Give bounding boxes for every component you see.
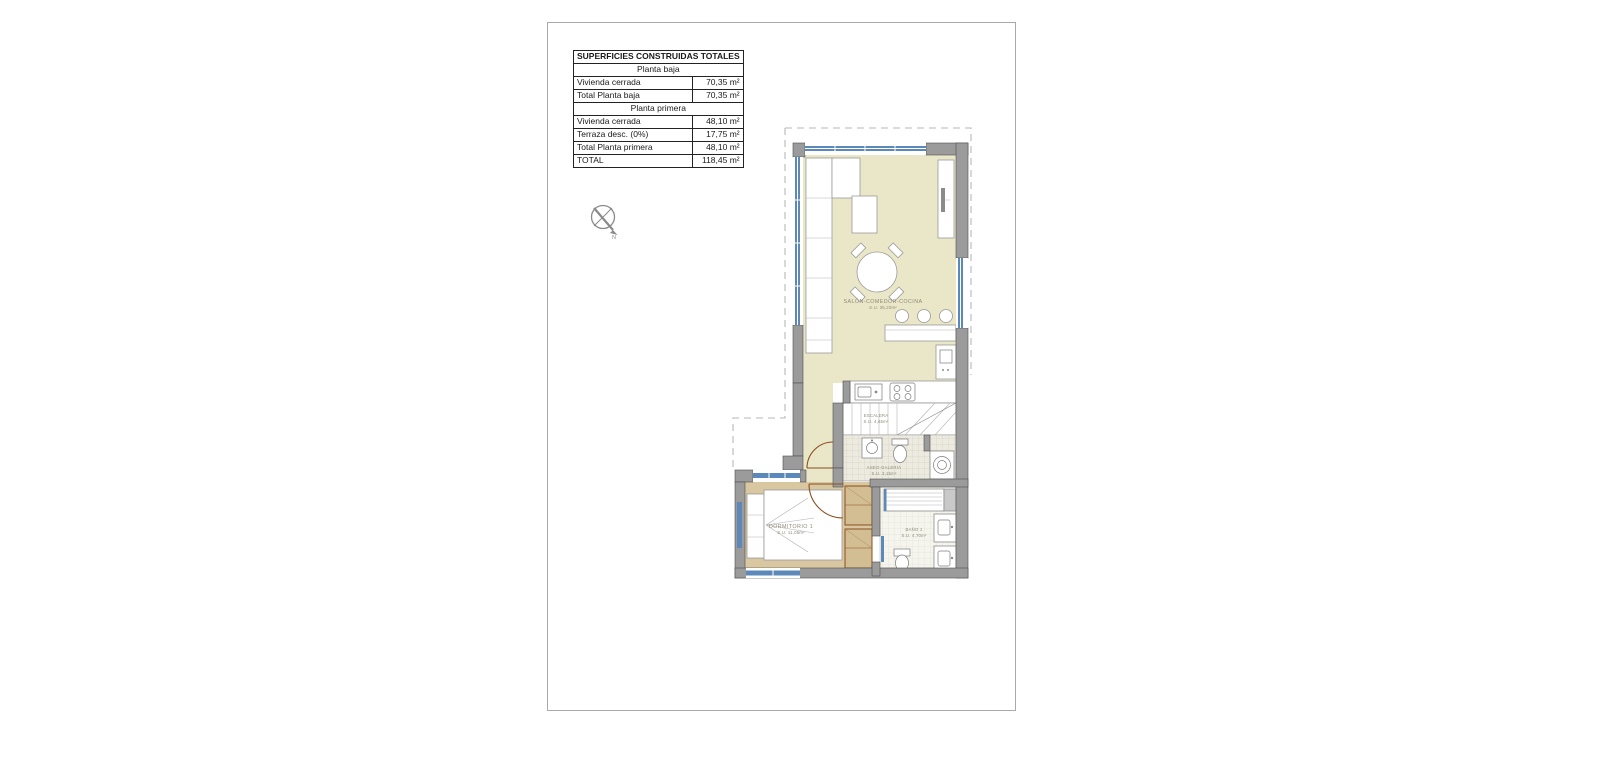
aseo-galeria: ASEO-GALERIA S.U. 3,15m² (843, 435, 956, 481)
vanity-basin (934, 514, 956, 542)
bar-stool (918, 310, 931, 323)
window (956, 258, 968, 328)
wardrobe (845, 486, 872, 525)
hall-floor (803, 383, 833, 487)
bar-stool (896, 310, 909, 323)
shower (884, 489, 956, 511)
window (737, 502, 742, 548)
coffee-table (852, 196, 877, 233)
sofa (806, 158, 832, 353)
wardrobe (845, 529, 872, 568)
room-area-salon: S.U. 35,20m² (869, 305, 897, 310)
bathroom: BAÑO 1 S.U. 4,70m² (880, 487, 956, 572)
room-label-escalera: ESCALERA (864, 413, 889, 418)
window (753, 470, 800, 482)
room-area-bano: S.U. 4,70m² (901, 533, 926, 538)
window (793, 157, 803, 325)
tv-unit (938, 160, 954, 238)
staircase: ESCALERA S.U. 4,65m² (843, 403, 956, 435)
oven-column (936, 345, 956, 379)
wash-basin (862, 438, 882, 458)
washing-machine (930, 451, 954, 479)
room-area-dormitorio: S.U. 11,05m² (777, 530, 805, 535)
breakfast-bar (885, 325, 956, 341)
room-label-salon: SALÓN-COMEDOR-COCINA (844, 298, 923, 305)
dining-table (857, 252, 897, 292)
room-area-aseo: S.U. 3,15m² (871, 471, 896, 476)
sofa-chaise (832, 158, 860, 198)
toilet (892, 439, 908, 463)
bar-stool (940, 310, 953, 323)
partition-wall (924, 435, 930, 451)
bathroom-door (881, 536, 884, 562)
cooktop (890, 383, 915, 401)
room-label-aseo: ASEO-GALERIA (867, 465, 901, 470)
room-area-escalera: S.U. 4,65m² (863, 419, 888, 424)
window (746, 568, 800, 578)
room-label-bano: BAÑO 1 (906, 527, 923, 532)
north-compass-icon: N (592, 206, 618, 242)
drawing-sheet: SUPERFICIES CONSTRUIDAS TOTALES Planta b… (0, 0, 1620, 760)
compass-north-label: N (612, 235, 616, 241)
window (805, 143, 926, 155)
floor-plan: N (540, 15, 1020, 715)
kitchen-sink (855, 384, 882, 400)
